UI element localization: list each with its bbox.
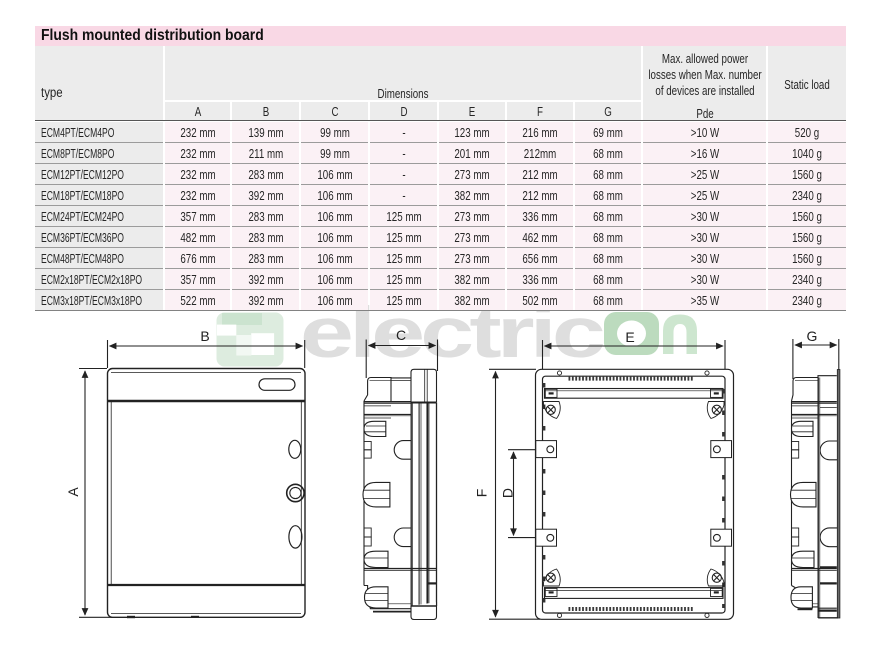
svg-text:C: C	[396, 327, 406, 343]
svg-text:B: B	[200, 328, 209, 344]
svg-text:E: E	[625, 329, 634, 345]
svg-text:F: F	[474, 489, 490, 498]
svg-text:D: D	[500, 488, 516, 498]
svg-text:G: G	[807, 328, 818, 344]
svg-text:A: A	[65, 487, 81, 497]
